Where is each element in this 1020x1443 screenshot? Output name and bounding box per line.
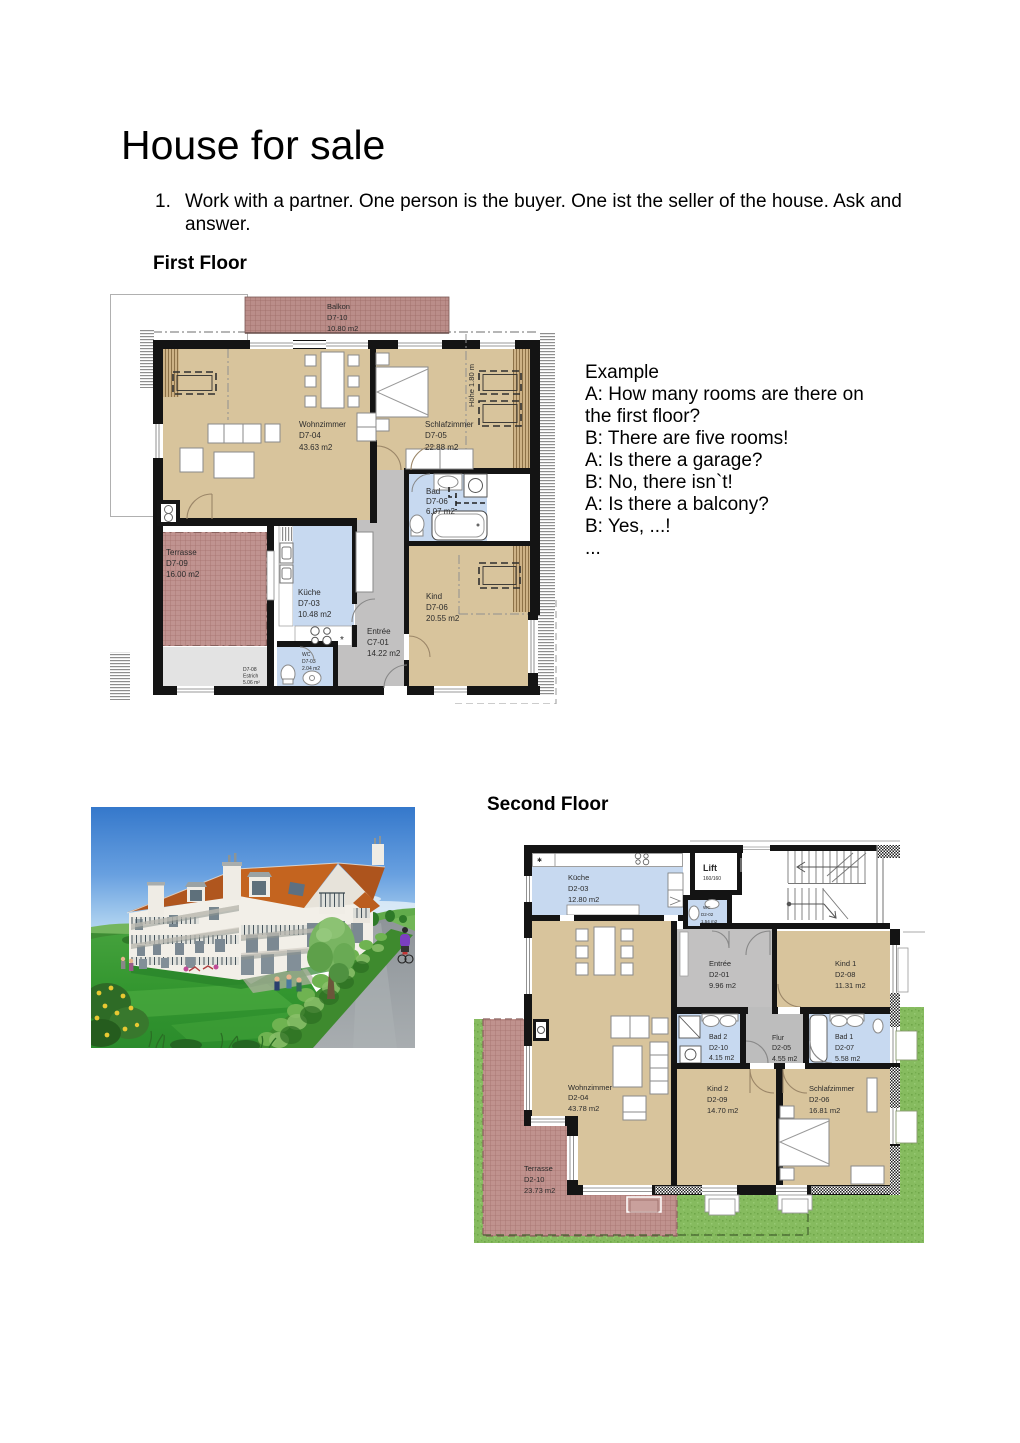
svg-text:14.70 m2: 14.70 m2 [707, 1106, 738, 1115]
svg-text:Bad 2: Bad 2 [709, 1034, 727, 1041]
svg-text:43.63 m2: 43.63 m2 [299, 443, 333, 452]
svg-text:D7-08: D7-08 [243, 667, 257, 673]
svg-text:D2-03: D2-03 [568, 884, 588, 893]
svg-text:23.73 m2: 23.73 m2 [524, 1186, 555, 1195]
svg-text:Kind: Kind [426, 592, 442, 601]
svg-text:Bad 1: Bad 1 [835, 1034, 853, 1041]
svg-text:6.07 m2: 6.07 m2 [426, 507, 455, 516]
svg-text:Kind 1: Kind 1 [835, 959, 856, 968]
svg-text:20.55 m2: 20.55 m2 [426, 614, 460, 623]
svg-text:D2-10: D2-10 [709, 1045, 728, 1052]
svg-text:D2-01: D2-01 [709, 970, 729, 979]
svg-text:D7-04: D7-04 [299, 431, 321, 440]
svg-text:22.88 m2: 22.88 m2 [425, 443, 459, 452]
svg-text:*: * [340, 635, 344, 646]
svg-text:43.78 m2: 43.78 m2 [568, 1104, 599, 1113]
svg-text:160/160: 160/160 [703, 876, 721, 882]
svg-text:10.48 m2: 10.48 m2 [298, 610, 332, 619]
svg-text:Flur: Flur [772, 1035, 785, 1042]
svg-text:WC: WC [302, 652, 311, 658]
svg-text:Küche: Küche [298, 588, 321, 597]
svg-text:4.15 m2: 4.15 m2 [709, 1055, 734, 1062]
svg-text:Küche: Küche [568, 873, 589, 882]
svg-text:Höhe 1.80 m: Höhe 1.80 m [467, 364, 476, 407]
svg-text:9.96 m2: 9.96 m2 [709, 981, 736, 990]
svg-text:WC: WC [703, 905, 711, 910]
svg-text:4.55 m2: 4.55 m2 [772, 1056, 797, 1063]
svg-text:D2-02: D2-02 [701, 912, 714, 917]
svg-text:D2-04: D2-04 [568, 1093, 588, 1102]
svg-text:Wohnzimmer: Wohnzimmer [299, 420, 346, 429]
svg-text:D2-10: D2-10 [524, 1175, 544, 1184]
svg-text:5.58 m2: 5.58 m2 [835, 1056, 860, 1063]
svg-text:✱: ✱ [537, 857, 542, 864]
svg-text:2.04 m2: 2.04 m2 [302, 666, 320, 672]
svg-text:D7-06: D7-06 [426, 497, 448, 506]
svg-text:Entrée: Entrée [709, 959, 731, 968]
svg-text:Entrée: Entrée [367, 627, 391, 636]
svg-text:Kind 2: Kind 2 [707, 1084, 728, 1093]
svg-text:D2-05: D2-05 [772, 1045, 791, 1052]
svg-text:Estrich: Estrich [243, 674, 259, 680]
svg-text:D2-08: D2-08 [835, 970, 855, 979]
svg-text:Wohnzimmer: Wohnzimmer [568, 1083, 613, 1092]
svg-text:14.22 m2: 14.22 m2 [367, 649, 401, 658]
svg-text:D7-10: D7-10 [327, 313, 347, 322]
svg-text:11.31 m2: 11.31 m2 [835, 981, 866, 990]
svg-text:Schlafzimmer: Schlafzimmer [425, 420, 474, 429]
svg-text:5.06 m²: 5.06 m² [243, 680, 260, 686]
svg-text:Terrasse: Terrasse [524, 1164, 553, 1173]
svg-text:D7-05: D7-05 [425, 431, 447, 440]
svg-text:Balkon: Balkon [327, 302, 350, 311]
svg-text:12.80 m2: 12.80 m2 [568, 895, 599, 904]
svg-text:D2-09: D2-09 [707, 1095, 727, 1104]
svg-text:D7-09: D7-09 [166, 559, 188, 568]
svg-text:16.00 m2: 16.00 m2 [166, 570, 200, 579]
svg-text:D7-03: D7-03 [298, 599, 320, 608]
svg-text:Terrasse: Terrasse [166, 548, 197, 557]
svg-text:Schlafzimmer: Schlafzimmer [809, 1084, 855, 1093]
svg-text:D2-07: D2-07 [835, 1045, 854, 1052]
svg-text:D7-06: D7-06 [426, 603, 448, 612]
svg-text:D2-06: D2-06 [809, 1095, 829, 1104]
svg-text:Lift: Lift [703, 863, 717, 873]
svg-text:C7-01: C7-01 [367, 638, 389, 647]
svg-text:16.81 m2: 16.81 m2 [809, 1106, 840, 1115]
svg-text:10.80 m2: 10.80 m2 [327, 324, 358, 333]
svg-text:Bad: Bad [426, 487, 440, 496]
